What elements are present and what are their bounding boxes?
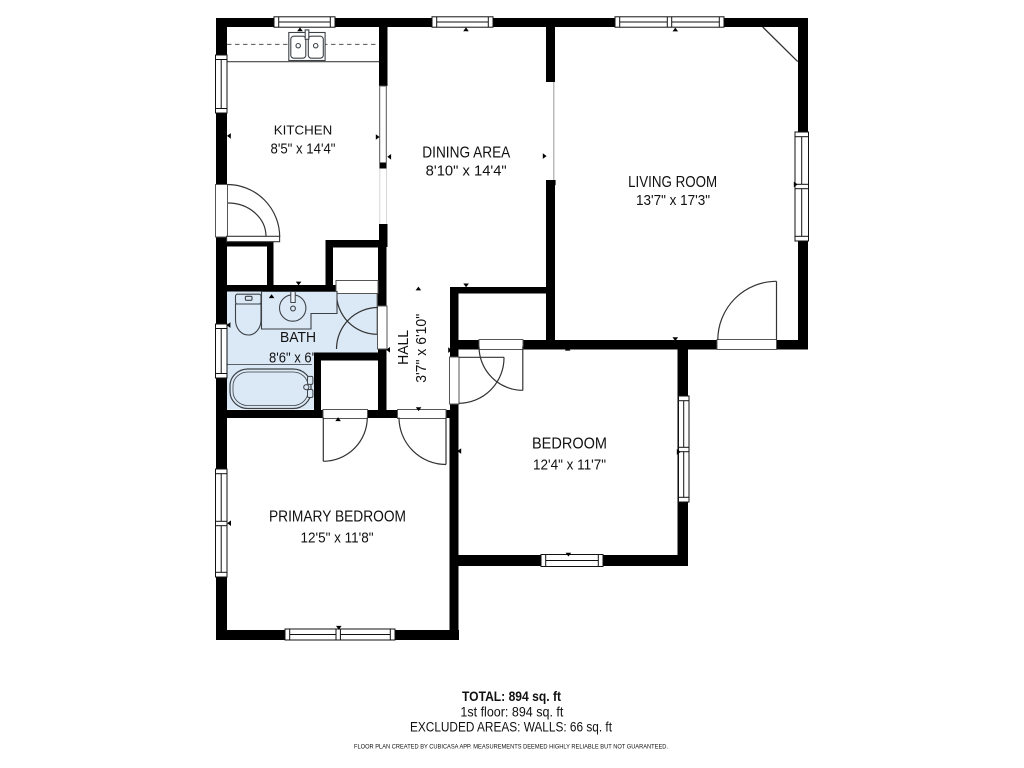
svg-text:FLOOR PLAN CREATED BY CUBICASA: FLOOR PLAN CREATED BY CUBICASA APP. MEAS… bbox=[354, 744, 668, 751]
svg-text:8'10" x 14'4": 8'10" x 14'4" bbox=[426, 163, 507, 179]
svg-text:13'7" x 17'3": 13'7" x 17'3" bbox=[636, 193, 710, 209]
svg-text:12'4" x 11'7": 12'4" x 11'7" bbox=[533, 458, 606, 474]
svg-text:HALL: HALL bbox=[395, 330, 412, 365]
svg-text:3'7" x 6'10": 3'7" x 6'10" bbox=[414, 314, 430, 383]
svg-text:PRIMARY BEDROOM: PRIMARY BEDROOM bbox=[269, 508, 406, 525]
svg-text:TOTAL: 894 sq. ft: TOTAL: 894 sq. ft bbox=[462, 689, 561, 705]
svg-text:BEDROOM: BEDROOM bbox=[532, 435, 607, 452]
svg-text:BATH: BATH bbox=[280, 330, 316, 346]
svg-text:12'5" x 11'8": 12'5" x 11'8" bbox=[301, 531, 374, 547]
svg-text:EXCLUDED AREAS: WALLS: 66 sq.: EXCLUDED AREAS: WALLS: 66 sq. ft bbox=[410, 720, 612, 736]
svg-text:8'5" x 14'4": 8'5" x 14'4" bbox=[271, 142, 336, 158]
svg-text:LIVING ROOM: LIVING ROOM bbox=[628, 174, 717, 191]
svg-text:DINING AREA: DINING AREA bbox=[422, 145, 511, 162]
svg-text:KITCHEN: KITCHEN bbox=[274, 123, 333, 138]
svg-text:1st floor: 894 sq. ft: 1st floor: 894 sq. ft bbox=[460, 704, 563, 720]
